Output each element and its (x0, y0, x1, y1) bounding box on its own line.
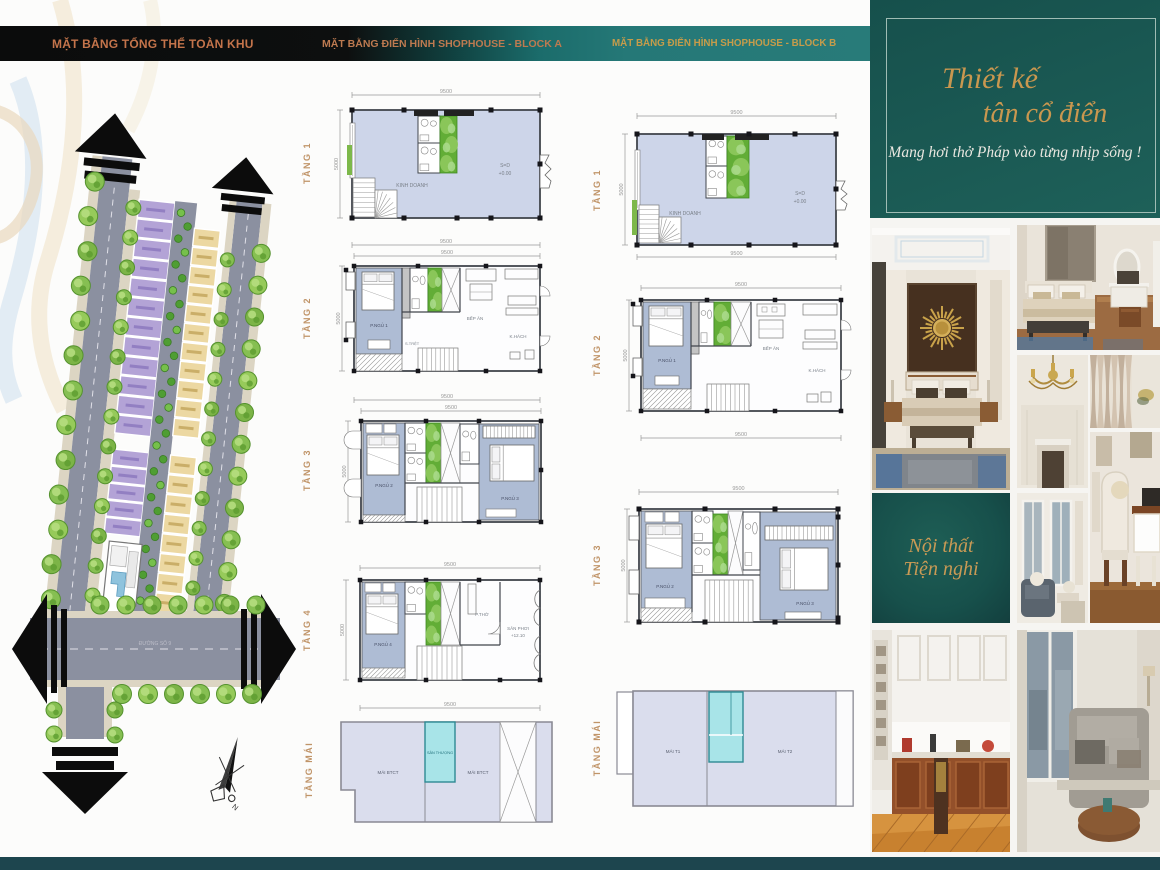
svg-text:SÂN THƯỢNG: SÂN THƯỢNG (427, 750, 453, 755)
svg-text:P.NGỦ 3: P.NGỦ 3 (501, 495, 519, 501)
svg-text:9500: 9500 (735, 282, 747, 288)
svg-text:TẦNG MÁI: TẦNG MÁI (592, 720, 602, 777)
svg-text:9500: 9500 (730, 251, 742, 257)
svg-text:BẾP ĂN: BẾP ĂN (763, 345, 779, 351)
svg-text:9500: 9500 (730, 110, 742, 116)
svg-text:TẦNG 1: TẦNG 1 (302, 142, 312, 184)
svg-text:TẦNG 2: TẦNG 2 (302, 297, 312, 339)
svg-text:S=D: S=D (795, 191, 805, 197)
svg-text:S.TRỆT: S.TRỆT (405, 341, 420, 346)
svg-text:KINH DOANH: KINH DOANH (396, 183, 428, 189)
svg-text:N: N (230, 802, 240, 812)
svg-text:5000: 5000 (619, 183, 625, 195)
svg-text:TẦNG 4: TẦNG 4 (302, 609, 312, 651)
svg-text:+0.00: +0.00 (794, 199, 807, 205)
svg-text:MÁI BTCT: MÁI BTCT (468, 769, 489, 775)
svg-text:5000: 5000 (621, 559, 627, 571)
svg-text:P.NGỦ 1: P.NGỦ 1 (658, 357, 676, 363)
svg-text:5000: 5000 (342, 465, 348, 477)
svg-text:TẦNG MÁI: TẦNG MÁI (304, 742, 314, 799)
svg-text:9500: 9500 (444, 562, 456, 568)
svg-text:9500: 9500 (440, 239, 452, 245)
svg-text:5000: 5000 (623, 349, 629, 361)
svg-text:MÁI BTCT: MÁI BTCT (378, 769, 399, 775)
svg-text:+12.10: +12.10 (511, 633, 525, 638)
svg-text:TẦNG 3: TẦNG 3 (302, 449, 312, 491)
svg-text:TẦNG 1: TẦNG 1 (592, 169, 602, 211)
svg-text:9500: 9500 (441, 394, 453, 400)
svg-text:SÂN PHƠI: SÂN PHƠI (507, 625, 529, 631)
svg-text:+0.00: +0.00 (499, 171, 512, 177)
svg-text:BẾP ĂN: BẾP ĂN (467, 315, 483, 321)
svg-text:K.HÁCH: K.HÁCH (808, 367, 825, 373)
svg-text:P.NGỦ 2: P.NGỦ 2 (375, 482, 393, 488)
svg-text:MÁI T1: MÁI T1 (666, 748, 681, 754)
svg-text:5000: 5000 (336, 312, 342, 324)
svg-text:TẦNG 2: TẦNG 2 (592, 334, 602, 376)
svg-text:5000: 5000 (340, 624, 346, 636)
svg-text:9500: 9500 (445, 405, 457, 411)
svg-text:9500: 9500 (441, 250, 453, 256)
svg-text:P.NGỦ 4: P.NGỦ 4 (374, 641, 392, 647)
svg-text:P.NGỦ 3: P.NGỦ 3 (796, 600, 814, 606)
svg-text:P.NGỦ 2: P.NGỦ 2 (656, 583, 674, 589)
svg-text:P.THỜ: P.THỜ (475, 611, 489, 617)
svg-text:P.NGỦ 1: P.NGỦ 1 (370, 322, 388, 328)
svg-text:S=D: S=D (500, 163, 510, 169)
svg-text:5000: 5000 (334, 158, 340, 170)
svg-text:TẦNG 3: TẦNG 3 (592, 544, 602, 586)
svg-text:9500: 9500 (732, 486, 744, 492)
svg-text:9500: 9500 (735, 432, 747, 438)
svg-text:MÁI T2: MÁI T2 (778, 748, 793, 754)
svg-text:K.HÁCH: K.HÁCH (509, 333, 526, 339)
svg-text:9500: 9500 (440, 89, 452, 95)
svg-text:KINH DOANH: KINH DOANH (669, 211, 701, 217)
svg-text:ĐƯỜNG SỐ 9: ĐƯỜNG SỐ 9 (139, 640, 172, 647)
